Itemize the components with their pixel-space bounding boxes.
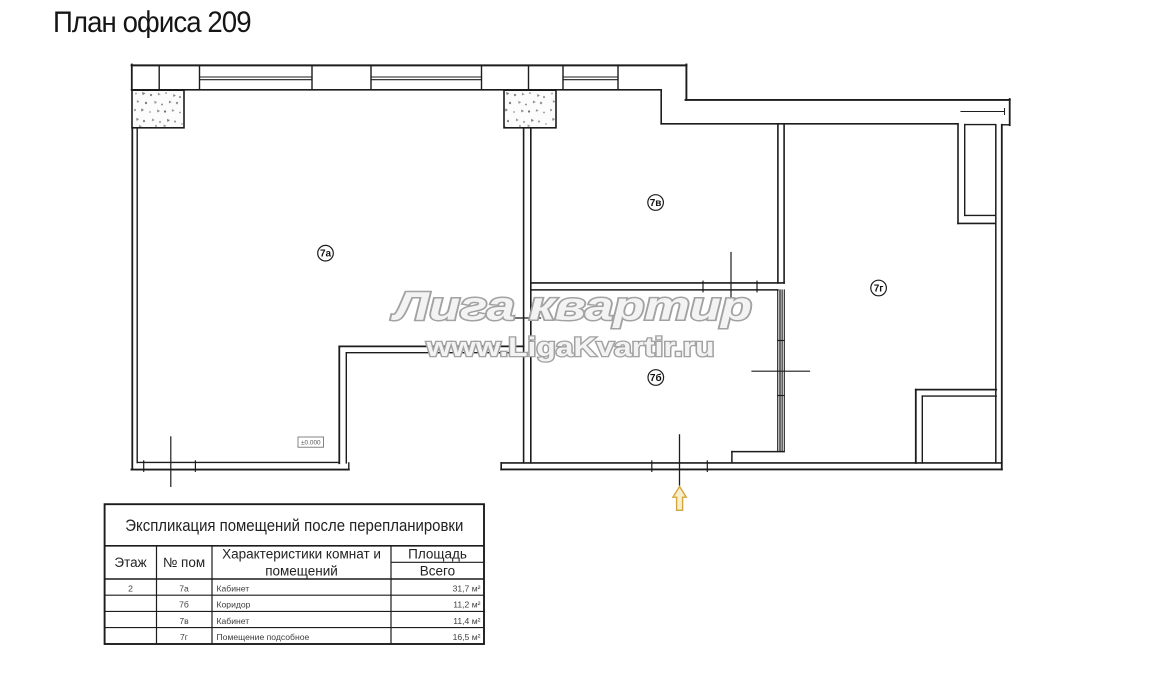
svg-text:16,5 м²: 16,5 м²	[453, 632, 481, 642]
svg-text:Коридор: Коридор	[217, 600, 251, 610]
svg-text:Площадь: Площадь	[408, 547, 467, 562]
svg-text:7а: 7а	[320, 249, 332, 260]
svg-text:7в: 7в	[179, 616, 189, 626]
svg-text:2: 2	[128, 584, 133, 594]
svg-text:помещений: помещений	[265, 564, 338, 579]
svg-text:Помещение подсобное: Помещение подсобное	[217, 632, 310, 642]
svg-text:Экспликация помещений после пе: Экспликация помещений после перепланиров…	[125, 517, 463, 535]
svg-text:Кабинет: Кабинет	[217, 616, 250, 626]
svg-text:11,4 м²: 11,4 м²	[453, 616, 480, 626]
svg-text:www.LigaKvartir.ru: www.LigaKvartir.ru	[425, 332, 714, 362]
svg-text:7г: 7г	[874, 284, 884, 295]
svg-text:Лига квартир: Лига квартир	[390, 285, 752, 329]
svg-text:№ пом: № пом	[163, 555, 205, 570]
svg-text:±0.000: ±0.000	[301, 440, 321, 447]
svg-text:Кабинет: Кабинет	[217, 584, 250, 594]
svg-text:Характеристики комнат и: Характеристики комнат и	[222, 547, 381, 562]
svg-text:31,7 м²: 31,7 м²	[453, 584, 481, 594]
svg-text:Всего: Всего	[420, 564, 455, 579]
svg-text:7г: 7г	[180, 632, 188, 642]
svg-text:Этаж: Этаж	[114, 555, 146, 570]
svg-text:7б: 7б	[179, 600, 189, 610]
svg-text:7а: 7а	[179, 584, 189, 594]
svg-text:11,2 м²: 11,2 м²	[453, 600, 480, 610]
svg-text:7в: 7в	[650, 198, 662, 209]
svg-text:7б: 7б	[650, 372, 662, 384]
